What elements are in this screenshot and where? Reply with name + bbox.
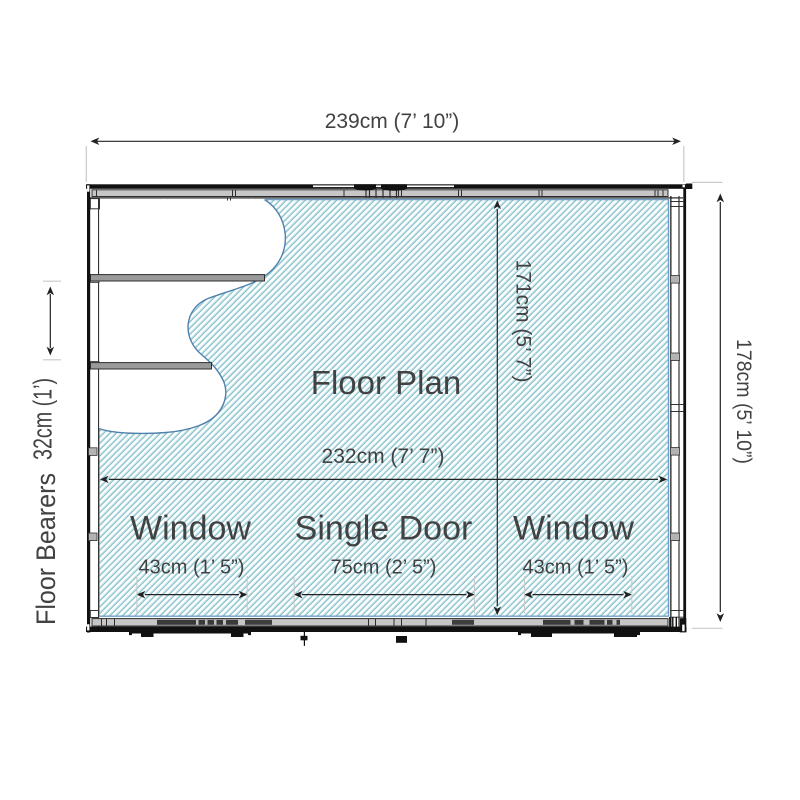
svg-text:Single Door: Single Door (295, 510, 473, 548)
svg-text:43cm (1’ 5”): 43cm (1’ 5”) (139, 557, 245, 579)
svg-text:Floor Bearers: Floor Bearers (31, 473, 61, 625)
svg-text:Window: Window (130, 510, 251, 548)
svg-text:75cm (2’ 5”): 75cm (2’ 5”) (331, 557, 437, 579)
svg-text:Window: Window (513, 510, 634, 548)
svg-text:43cm (1’ 5”): 43cm (1’ 5”) (523, 557, 629, 579)
svg-text:178cm (5’ 10”): 178cm (5’ 10”) (732, 339, 755, 464)
svg-text:Floor Plan: Floor Plan (311, 364, 461, 401)
svg-text:32cm (1’): 32cm (1’) (30, 378, 58, 460)
svg-text:171cm (5’ 7”): 171cm (5’ 7”) (512, 260, 535, 383)
svg-text:232cm (7’ 7”): 232cm (7’ 7”) (322, 445, 445, 468)
svg-text:239cm (7’ 10”): 239cm (7’ 10”) (325, 110, 460, 133)
